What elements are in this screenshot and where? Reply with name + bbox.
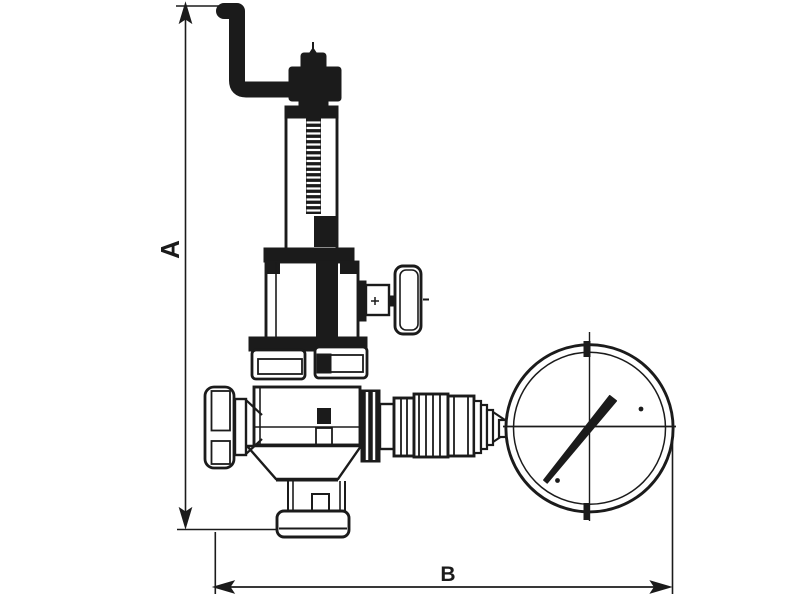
svg-text:A: A [155, 240, 185, 259]
svg-text:B: B [440, 563, 455, 586]
